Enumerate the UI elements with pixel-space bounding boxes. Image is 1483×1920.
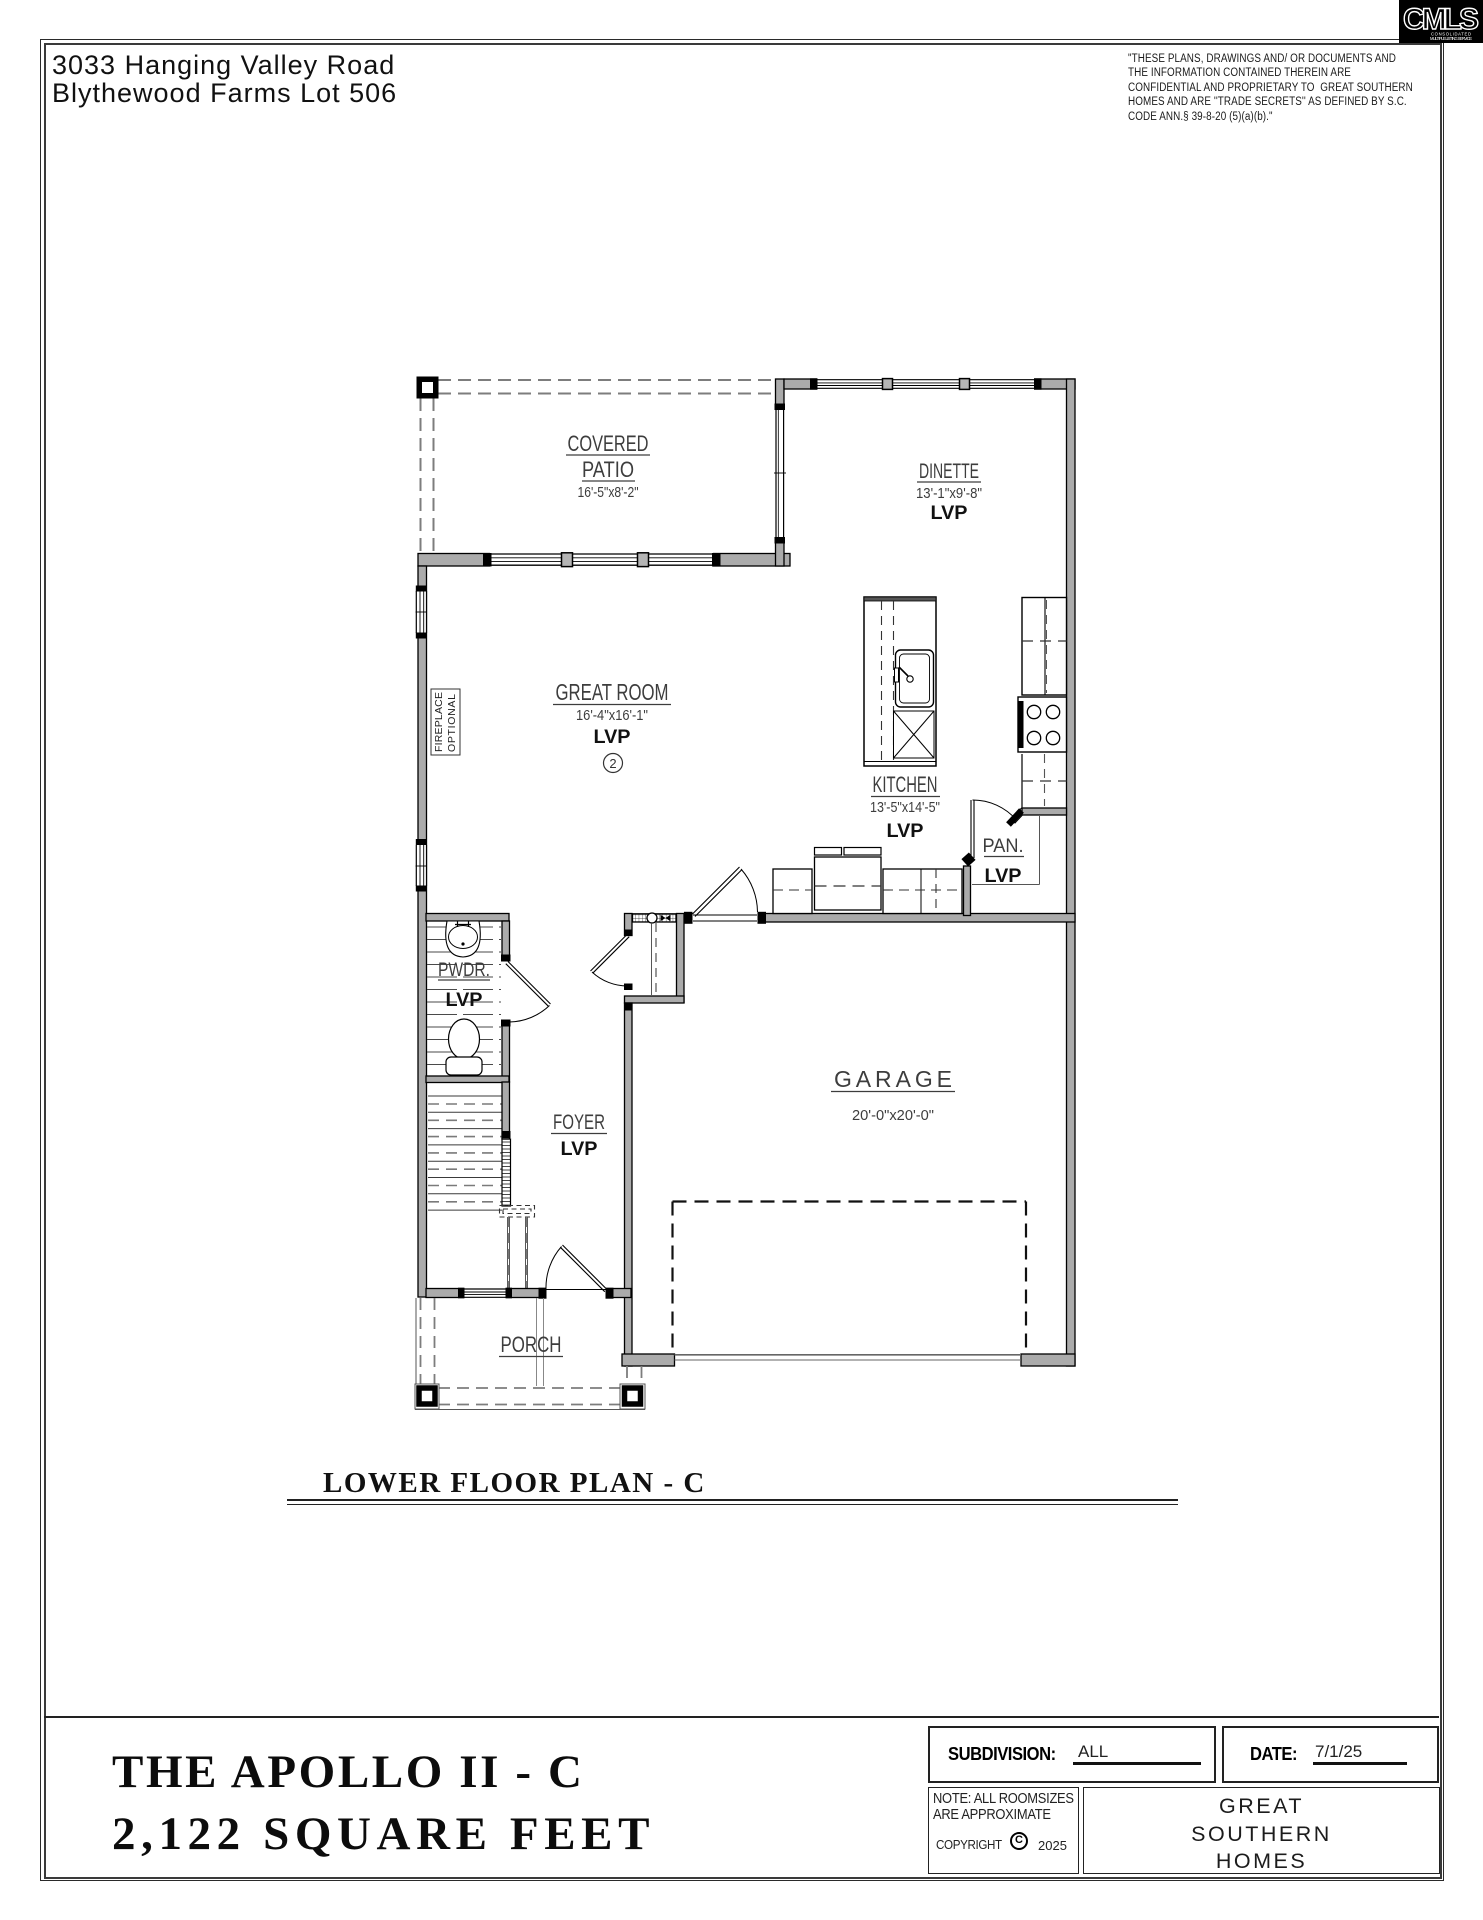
svg-text:PORCH: PORCH [501,1332,562,1357]
svg-text:20'-0"x20'-0": 20'-0"x20'-0" [852,1108,934,1124]
svg-text:PWDR.: PWDR. [438,960,490,981]
svg-text:13'-5"x14'-5": 13'-5"x14'-5" [870,800,940,816]
svg-text:13'-1"x9'-8": 13'-1"x9'-8" [916,486,982,502]
svg-text:KITCHEN: KITCHEN [873,772,938,797]
svg-text:LVP: LVP [561,1138,598,1160]
svg-text:FIREPLACE: FIREPLACE [433,692,445,752]
svg-text:GREAT ROOM: GREAT ROOM [556,679,669,705]
svg-text:2: 2 [609,756,616,771]
svg-text:GARAGE: GARAGE [834,1066,952,1092]
svg-text:LVP: LVP [985,865,1022,887]
svg-text:LVP: LVP [887,820,924,842]
svg-text:LVP: LVP [446,989,483,1011]
svg-text:16'-5"x8'-2": 16'-5"x8'-2" [578,485,639,501]
svg-text:COVERED: COVERED [568,431,649,456]
svg-text:LVP: LVP [594,726,631,748]
svg-text:FOYER: FOYER [553,1111,605,1134]
svg-text:PAN.: PAN. [983,836,1024,857]
svg-text:LVP: LVP [931,502,968,524]
svg-text:DINETTE: DINETTE [919,460,979,483]
svg-text:16'-4"x16'-1": 16'-4"x16'-1" [576,708,648,724]
svg-text:PATIO: PATIO [582,457,634,482]
svg-text:OPTIONAL: OPTIONAL [446,694,458,752]
